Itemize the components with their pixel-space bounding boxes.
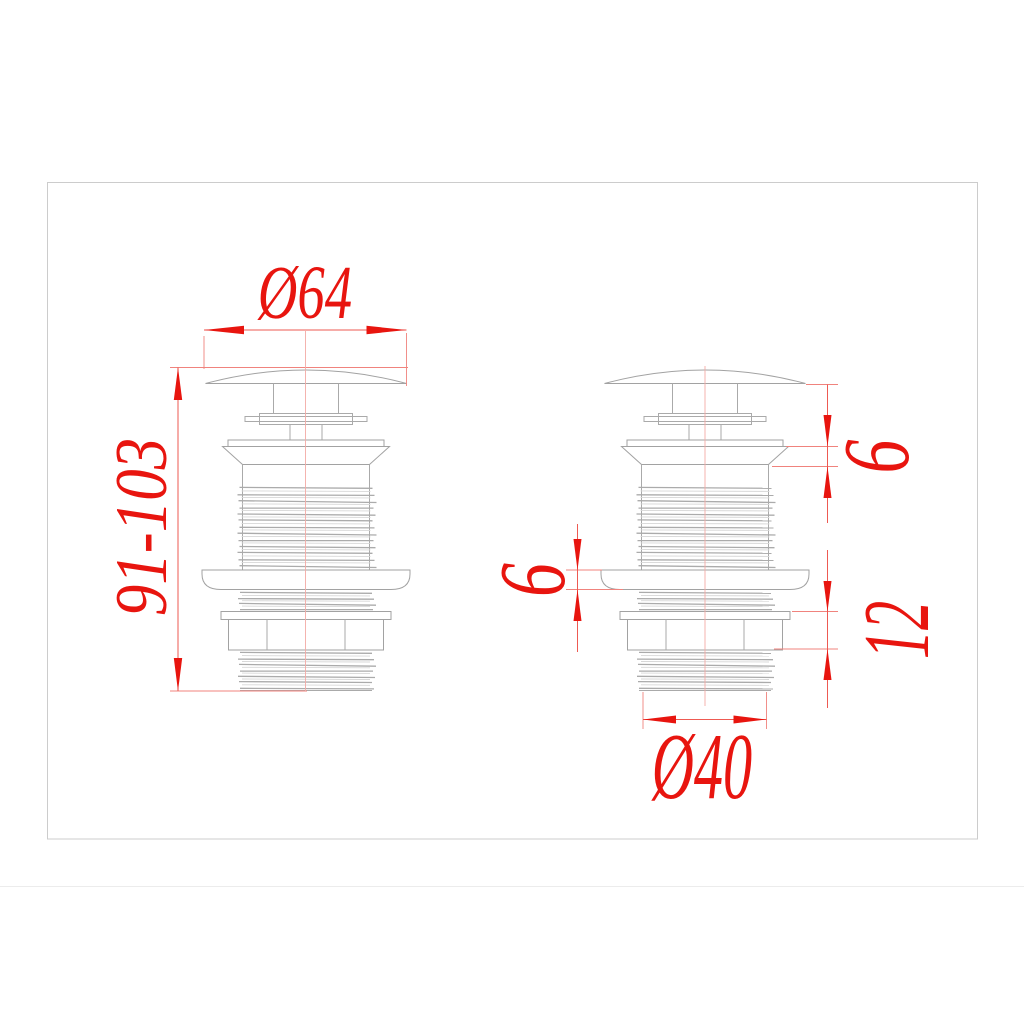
- sheet-border: [48, 183, 978, 840]
- thread-line: [240, 592, 372, 593]
- thread-line: [637, 533, 776, 535]
- thread-line: [242, 517, 371, 518]
- thread-line: [238, 514, 376, 515]
- thread-line: [240, 547, 376, 548]
- thread-line: [637, 676, 774, 677]
- thread-line: [639, 688, 773, 689]
- thread-line: [242, 491, 371, 492]
- upper-thread-section: [238, 487, 377, 567]
- thread-line: [239, 501, 377, 503]
- dim-label-flange-height: 6: [824, 440, 928, 474]
- thread-line: [238, 533, 377, 535]
- thread-line: [238, 676, 375, 677]
- thread-line: [638, 501, 776, 503]
- dim-washer-thickness: 6: [480, 524, 623, 652]
- thread-line: [638, 603, 775, 605]
- thread-line: [242, 595, 370, 596]
- dim-label-tail-diameter: Ø40: [651, 714, 752, 819]
- thread-line: [639, 566, 776, 568]
- thread-line: [639, 527, 774, 528]
- dim-label-height-range: 91-103: [100, 438, 182, 616]
- dim-label-washer-thickness: 6: [480, 563, 584, 597]
- thread-line: [242, 504, 371, 505]
- thread-line: [638, 682, 771, 683]
- thread-line: [242, 556, 371, 557]
- flange-cone: [223, 447, 390, 465]
- thread-line: [638, 520, 772, 521]
- thread-line: [637, 514, 775, 515]
- thread-line: [638, 664, 775, 666]
- dim-label-cap-diameter: Ø64: [257, 251, 352, 335]
- lift-disc-hub: [260, 414, 353, 425]
- dim-flange-height: 6: [772, 385, 929, 524]
- drawing-canvas: Ø64 91-103 6 6 12: [0, 0, 1024, 1024]
- sealing-washer: [202, 570, 410, 590]
- dim-label-locknut-section: 12: [844, 601, 949, 659]
- upper-thread-section: [637, 487, 776, 567]
- middle-thread-section: [637, 592, 775, 609]
- thread-line: [242, 679, 370, 680]
- thread-line: [242, 510, 371, 511]
- thread-line: [240, 566, 377, 568]
- arrowhead-up: [174, 368, 182, 401]
- thread-line: [240, 527, 375, 528]
- thread-line: [240, 487, 373, 488]
- thread-line: [242, 530, 371, 531]
- thread-line: [639, 547, 775, 548]
- cap-outline: [206, 370, 407, 384]
- thread-line: [242, 543, 371, 544]
- thread-line: [238, 495, 375, 496]
- arrowhead-down: [824, 581, 832, 612]
- thread-line: [240, 652, 372, 653]
- thread-line: [242, 667, 370, 668]
- thread-line: [242, 673, 370, 674]
- thread-line: [637, 552, 772, 553]
- thread-line: [242, 536, 371, 537]
- thread-line: [240, 688, 374, 689]
- thread-line: [239, 603, 376, 605]
- lift-disc-wide-plate: [245, 417, 367, 422]
- thread-line: [242, 523, 371, 524]
- dim-locknut-section: 12: [774, 550, 948, 708]
- arrowhead-up: [824, 649, 832, 680]
- thread-line: [242, 606, 370, 607]
- locknut-flange-plate: [221, 612, 391, 620]
- thread-line: [242, 601, 370, 602]
- thread-line: [238, 552, 373, 553]
- arrowhead-left: [204, 326, 244, 334]
- locknut-body: [229, 620, 384, 651]
- thread-line: [242, 662, 370, 663]
- arrowhead-down: [174, 658, 182, 691]
- middle-thread-section: [238, 592, 376, 609]
- left-figure: [202, 370, 410, 691]
- flange-top-plate: [228, 440, 384, 447]
- thread-line: [242, 497, 371, 498]
- thread-line: [242, 685, 370, 686]
- tailpiece-thread-section: [637, 652, 775, 689]
- thread-line: [239, 664, 376, 666]
- arrowhead-right: [367, 326, 407, 334]
- thread-line: [239, 560, 375, 561]
- dim-tail-diameter: Ø40: [643, 692, 767, 818]
- thread-line: [238, 599, 374, 600]
- thread-line: [638, 560, 774, 561]
- tailpiece-thread-section: [238, 652, 376, 689]
- thread-line: [242, 656, 370, 657]
- technical-drawing-page: Ø64 91-103 6 6 12: [0, 0, 1024, 1024]
- thread-line: [242, 562, 371, 563]
- thread-line: [242, 549, 371, 550]
- thread-line: [238, 659, 374, 660]
